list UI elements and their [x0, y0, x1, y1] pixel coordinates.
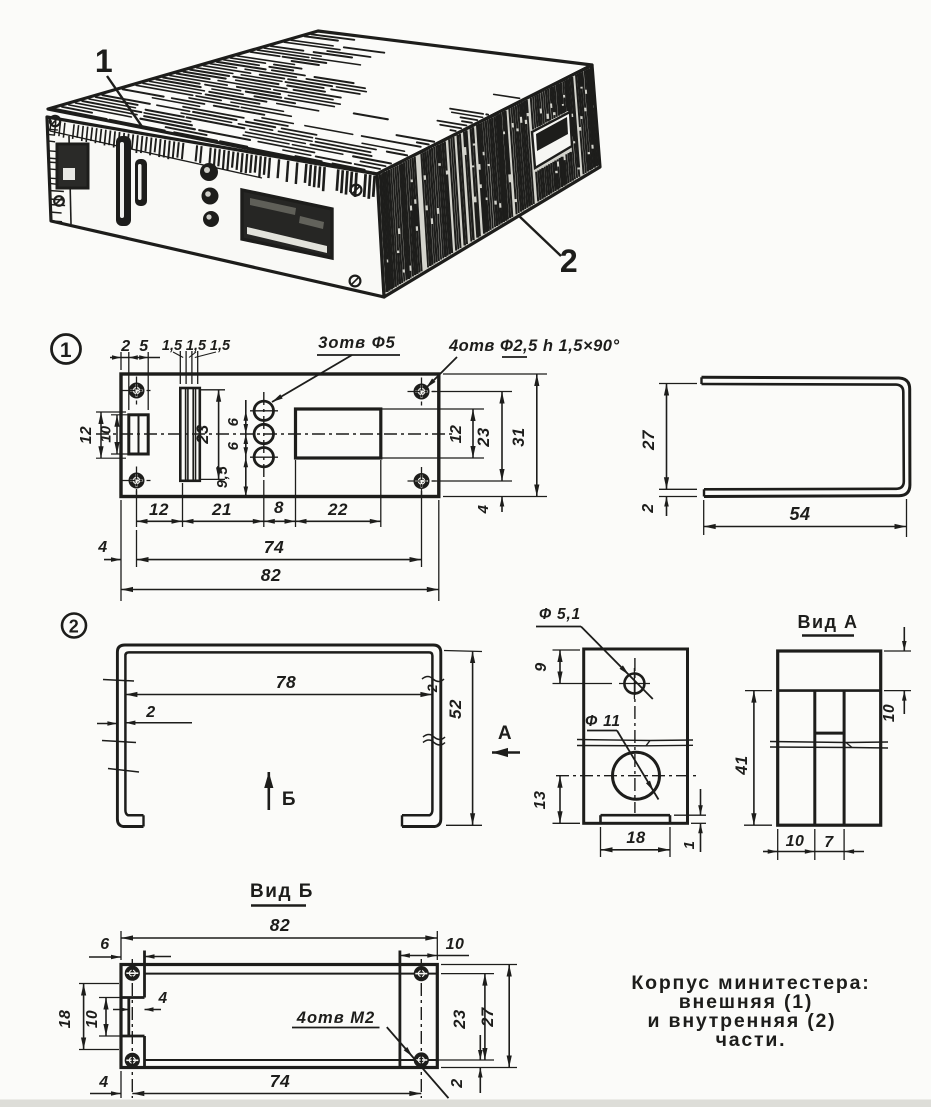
svg-text:4: 4	[157, 990, 167, 1007]
svg-text:12: 12	[78, 426, 95, 444]
svg-text:82: 82	[270, 915, 290, 935]
svg-text:74: 74	[264, 537, 284, 557]
svg-text:Б: Б	[282, 789, 296, 810]
svg-text:54: 54	[789, 504, 810, 524]
svg-text:Ф 11: Ф 11	[585, 713, 621, 730]
svg-text:6: 6	[225, 417, 242, 426]
svg-text:4отв Ф2,5 h 1,5×90°: 4отв Ф2,5 h 1,5×90°	[448, 337, 620, 355]
svg-text:А: А	[498, 723, 512, 744]
svg-text:4: 4	[97, 539, 107, 556]
svg-text:9,5: 9,5	[214, 466, 231, 489]
svg-text:78: 78	[276, 672, 296, 692]
svg-text:2: 2	[449, 1078, 466, 1088]
svg-text:74: 74	[270, 1071, 290, 1091]
svg-text:41: 41	[733, 755, 751, 775]
svg-text:2: 2	[560, 243, 578, 279]
svg-text:8: 8	[274, 498, 284, 517]
svg-text:Вид А: Вид А	[798, 612, 859, 632]
svg-text:22: 22	[327, 500, 348, 519]
svg-text:1: 1	[60, 339, 72, 362]
svg-text:2: 2	[145, 704, 155, 721]
svg-text:12: 12	[448, 425, 465, 444]
svg-text:9: 9	[533, 662, 550, 671]
svg-text:7: 7	[824, 834, 834, 851]
svg-text:13: 13	[532, 791, 549, 810]
svg-text:Ф 5,1: Ф 5,1	[539, 606, 581, 623]
svg-text:12: 12	[149, 500, 169, 519]
svg-text:23: 23	[194, 424, 212, 444]
svg-text:31: 31	[510, 427, 528, 446]
svg-text:52: 52	[446, 699, 465, 719]
svg-text:23: 23	[475, 427, 493, 447]
svg-text:27: 27	[479, 1007, 497, 1028]
svg-text:1: 1	[95, 43, 113, 79]
svg-text:23: 23	[451, 1009, 469, 1029]
svg-text:10: 10	[786, 833, 805, 850]
svg-text:18: 18	[626, 829, 646, 847]
svg-text:10: 10	[881, 704, 898, 722]
svg-text:3отв Ф5: 3отв Ф5	[318, 334, 396, 352]
svg-text:1,5: 1,5	[186, 338, 207, 354]
svg-text:1: 1	[681, 841, 698, 850]
svg-text:10: 10	[84, 1010, 101, 1028]
svg-text:4отв М2: 4отв М2	[296, 1009, 375, 1027]
svg-text:27: 27	[639, 429, 658, 451]
svg-text:5: 5	[139, 338, 149, 355]
svg-text:10: 10	[99, 425, 115, 442]
svg-text:2: 2	[640, 503, 657, 513]
svg-text:2: 2	[120, 338, 130, 355]
svg-text:1,5: 1,5	[162, 338, 183, 354]
svg-text:82: 82	[261, 565, 281, 585]
svg-text:4: 4	[475, 504, 492, 514]
svg-text:4: 4	[98, 1074, 108, 1091]
svg-text:10: 10	[446, 936, 465, 953]
svg-text:1,5: 1,5	[210, 338, 231, 354]
svg-text:6: 6	[225, 441, 242, 450]
svg-text:Вид Б: Вид Б	[250, 881, 314, 902]
svg-text:18: 18	[57, 1010, 74, 1029]
svg-text:21: 21	[211, 500, 232, 519]
svg-text:части.: части.	[716, 1029, 787, 1051]
svg-text:2: 2	[69, 617, 80, 637]
svg-text:6: 6	[100, 936, 109, 953]
svg-text:2: 2	[424, 684, 440, 693]
